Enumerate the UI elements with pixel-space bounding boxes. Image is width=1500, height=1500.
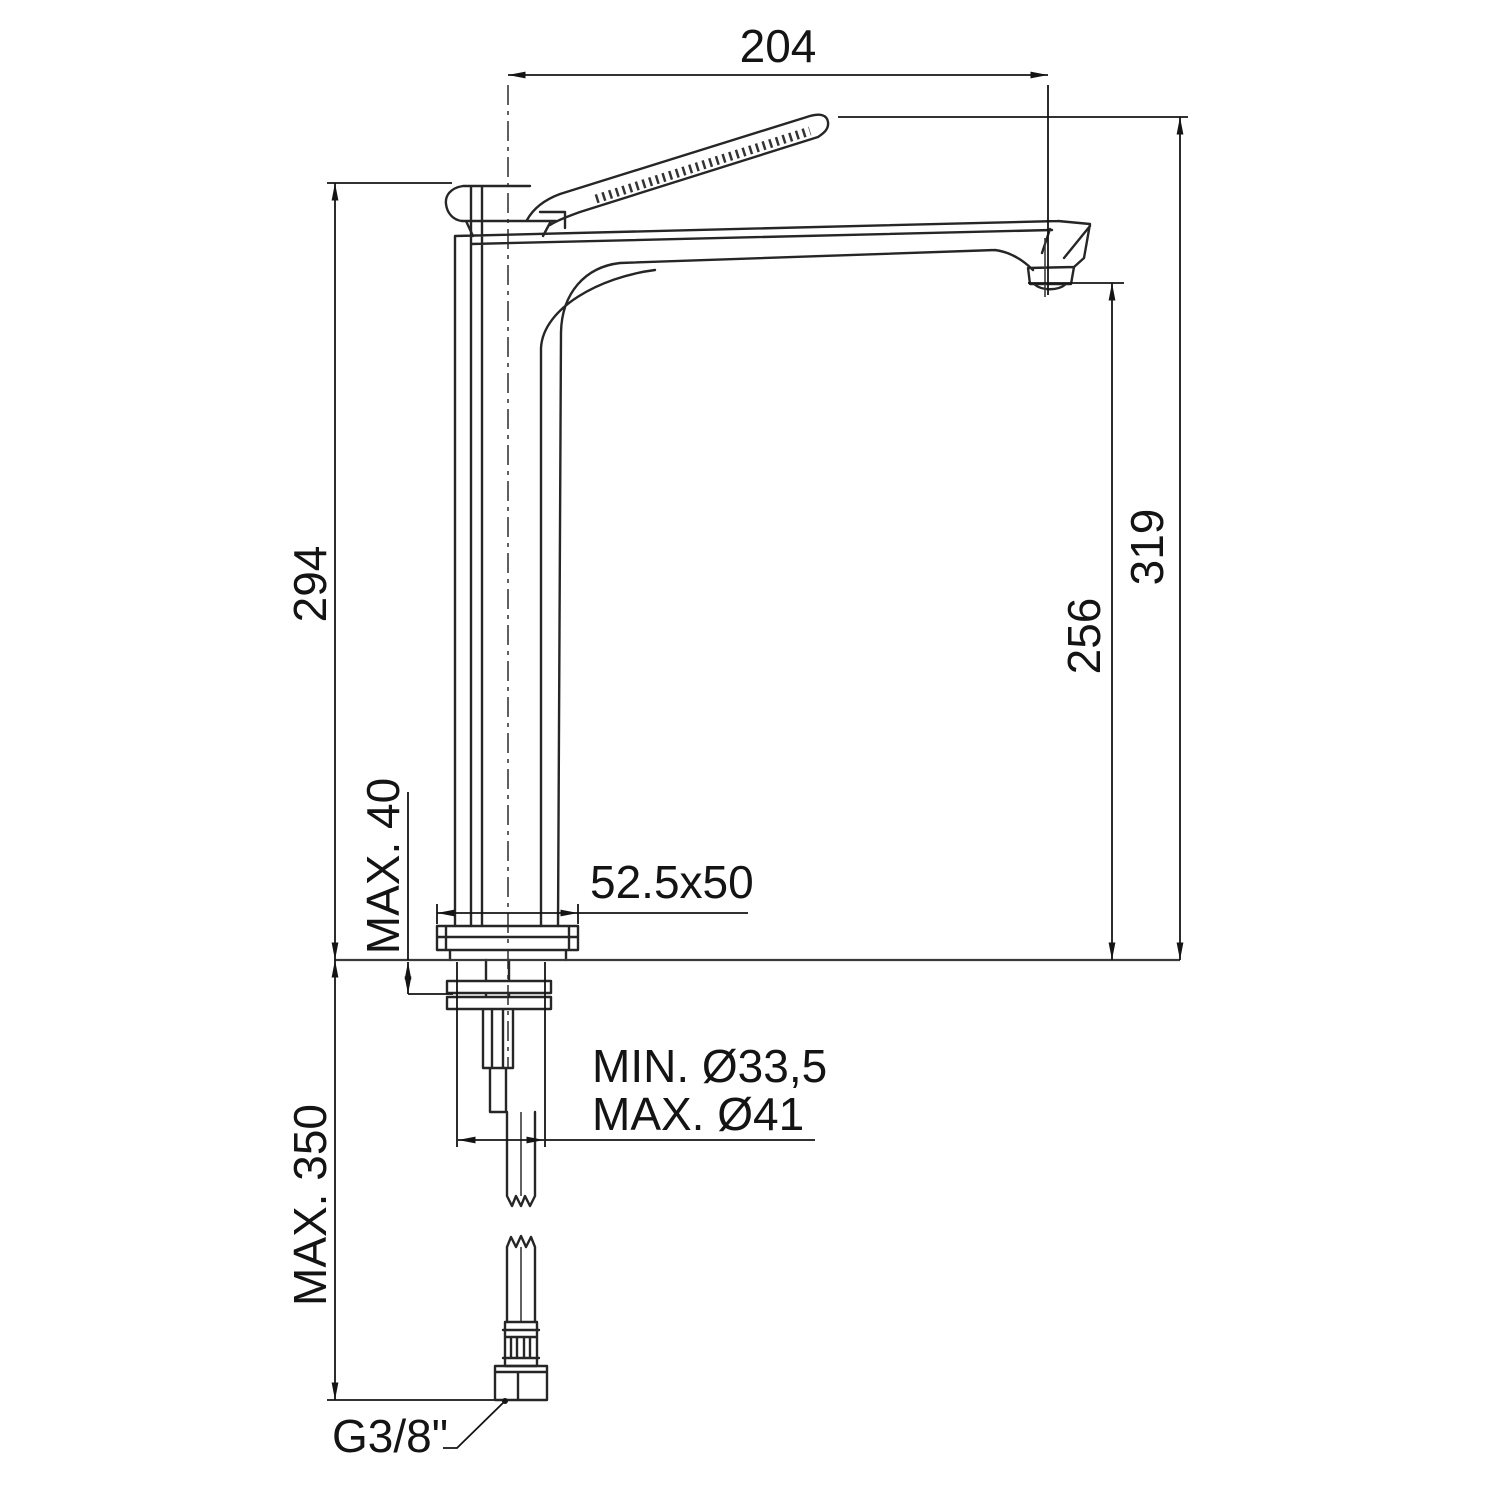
dimension-base-plate: 52.5x50 (437, 856, 754, 924)
faucet-technical-drawing: 204 294 MAX. 350 MAX. 40 52.5x50 MIN. Ø3… (0, 0, 1500, 1500)
dim-label-hole-min-diameter: MIN. Ø33,5 (592, 1040, 827, 1092)
thread-leader-line (443, 1401, 505, 1448)
faucet-outline (437, 85, 1090, 1400)
dim-40-tail (408, 792, 453, 994)
technical-drawing-page: 204 294 MAX. 350 MAX. 40 52.5x50 MIN. Ø3… (0, 0, 1500, 1500)
dimension-319-total-height: 319 (838, 117, 1188, 960)
dim-label-spout-reach: 204 (740, 20, 817, 72)
faucet-body-and-spout (455, 187, 1090, 926)
thread-callout: G3/8" (332, 1398, 508, 1462)
dim-label-spout-outlet-height: 256 (1058, 598, 1110, 675)
faucet-handle-lever (527, 115, 828, 225)
dimension-350-hose-length: MAX. 350 (284, 960, 494, 1400)
dim-label-base-plate-size: 52.5x50 (590, 856, 754, 908)
mounting-hardware (447, 960, 551, 1112)
dim-label-thread-size: G3/8" (332, 1410, 448, 1462)
thread-leader-dot (502, 1398, 508, 1404)
hose-connection-nut (495, 1366, 547, 1400)
dim-label-deck-thickness: MAX. 40 (357, 778, 409, 954)
faucet-handle-cap (446, 186, 565, 236)
dimension-40-deck-thickness: MAX. 40 (357, 778, 453, 994)
dim-label-hole-max-diameter: MAX. Ø41 (592, 1088, 804, 1140)
dim-label-hose-max-length: MAX. 350 (284, 1104, 336, 1306)
dimension-256-outlet-height: 256 (1028, 283, 1124, 960)
handle-grip-hatching (596, 131, 810, 199)
dim-label-total-height: 319 (1121, 509, 1173, 586)
dimension-204-spout-reach: 204 (508, 20, 1048, 295)
dim-label-body-height: 294 (284, 546, 336, 623)
hose-braided-ferrule (503, 1322, 539, 1366)
